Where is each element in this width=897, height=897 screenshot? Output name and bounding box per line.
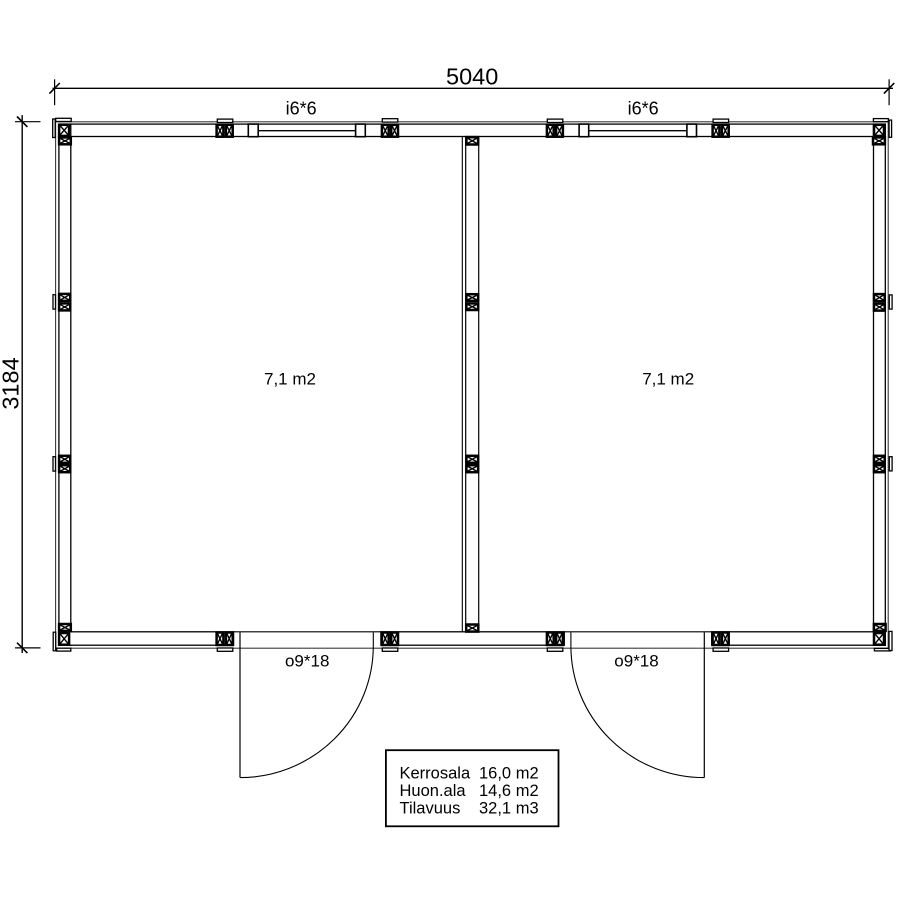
svg-text:Kerrosala: Kerrosala [400,765,471,783]
svg-text:14,6 m2: 14,6 m2 [479,782,539,800]
svg-text:3184: 3184 [0,357,23,409]
svg-text:32,1 m3: 32,1 m3 [479,800,539,818]
svg-text:o9*18: o9*18 [614,652,658,671]
svg-text:Huon.ala: Huon.ala [400,782,467,800]
svg-text:o9*18: o9*18 [285,652,329,671]
svg-text:16,0 m2: 16,0 m2 [479,765,539,783]
svg-text:7,1 m2: 7,1 m2 [642,370,694,389]
svg-text:5040: 5040 [446,64,498,90]
svg-text:i6*6: i6*6 [286,99,317,119]
svg-text:i6*6: i6*6 [628,99,659,119]
svg-text:7,1 m2: 7,1 m2 [264,370,316,389]
svg-text:Tilavuus: Tilavuus [400,800,461,818]
